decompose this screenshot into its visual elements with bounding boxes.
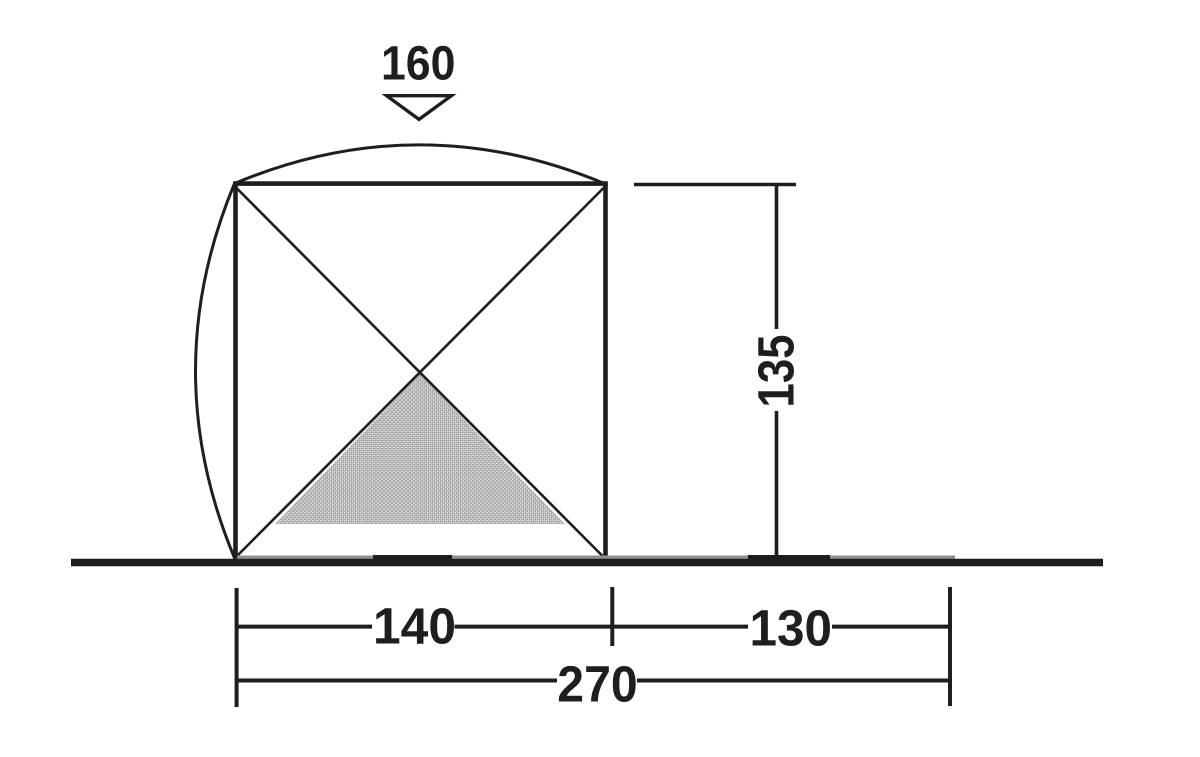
- svg-text:135: 135: [748, 335, 805, 408]
- svg-text:160: 160: [381, 37, 456, 90]
- svg-text:130: 130: [750, 600, 833, 657]
- svg-text:140: 140: [373, 598, 456, 655]
- svg-text:270: 270: [557, 655, 637, 712]
